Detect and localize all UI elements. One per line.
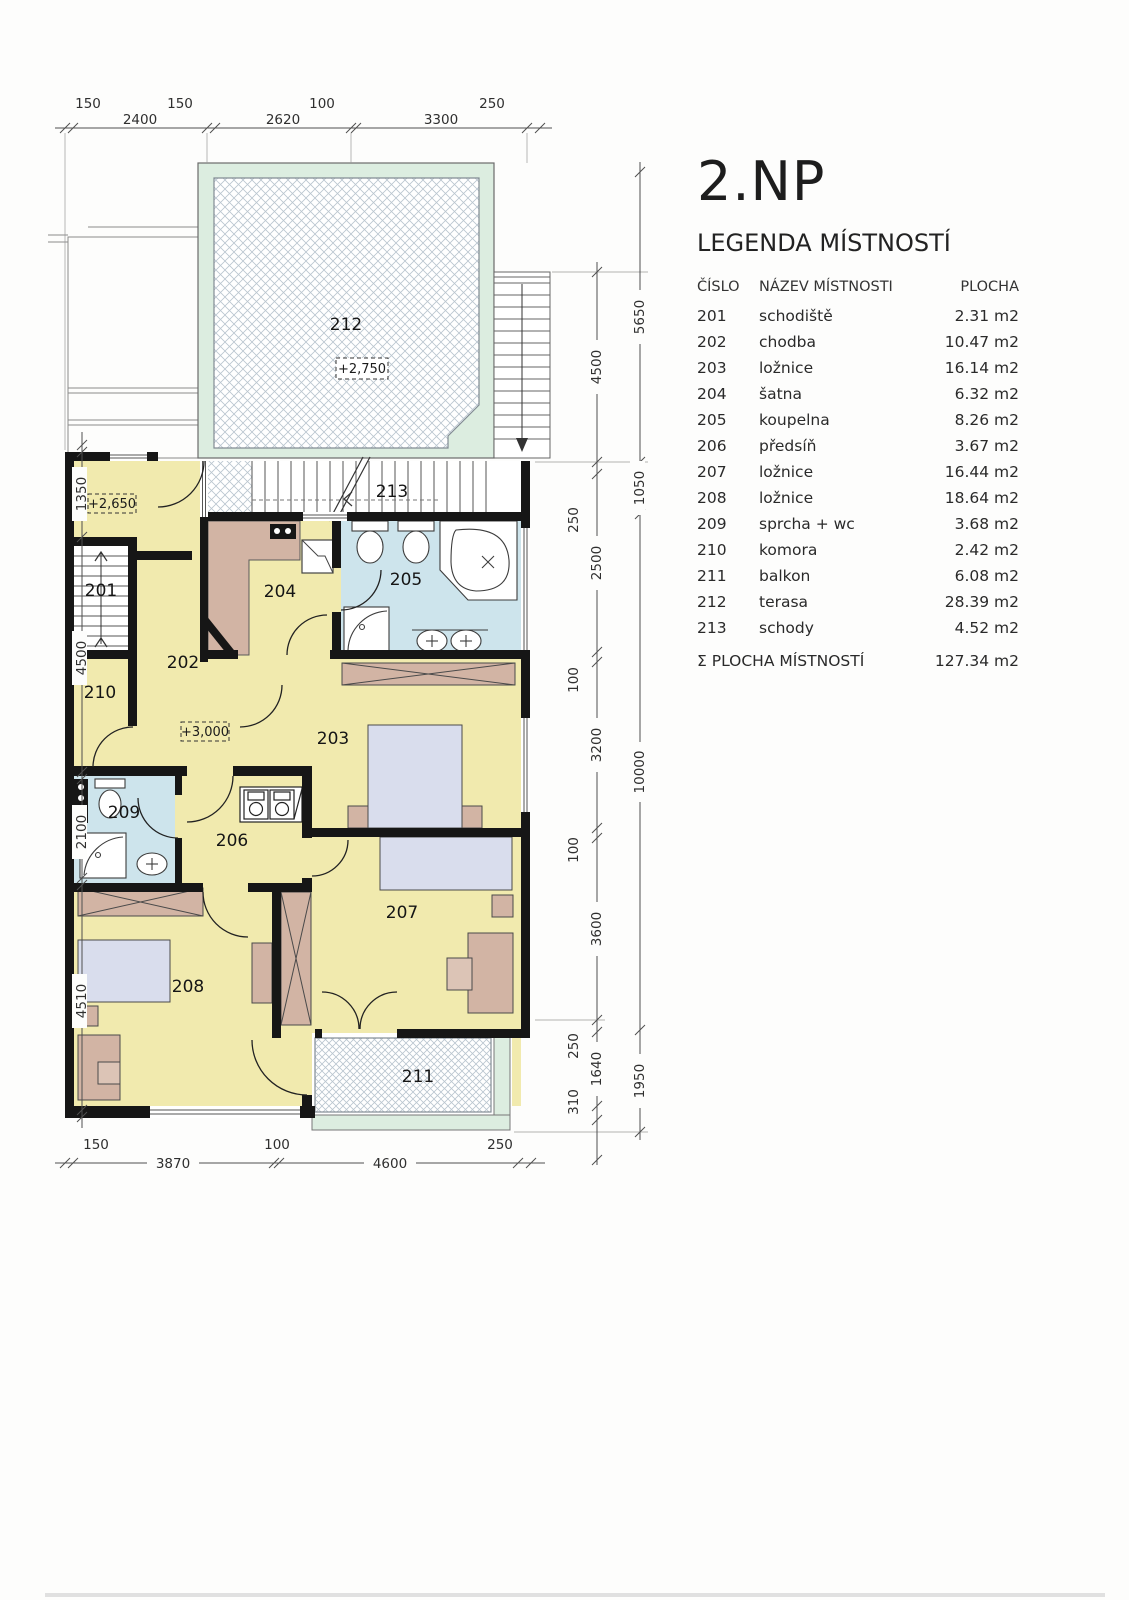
legend-row-208: 208 ložnice 18.64 m2 [697,485,1019,511]
room-area: 6.32 m2 [923,385,1019,403]
room-label-210: 210 [84,683,116,703]
dim-rin-0: 4500 [589,350,605,384]
dim-rin-8: 1640 [589,1052,605,1086]
scanned-floorplan-page: +2,650 +2,750 +3,000 201 202 203 204 205… [0,0,1129,1600]
legend-col-name: NÁZEV MÍSTNOSTI [759,279,923,295]
room-label-201: 201 [85,581,117,601]
dim-top-5: 3300 [424,112,458,128]
room-label-208: 208 [172,977,204,997]
dim-bottom-0: 150 [83,1137,109,1153]
room-name: předsíň [759,437,923,455]
dim-top-2: 150 [167,96,193,112]
room-label-205: 205 [390,570,422,590]
legend-col-number: ČÍSLO [697,279,759,295]
legend-panel: 2.NP LEGENDA MÍSTNOSTÍ ČÍSLO NÁZEV MÍSTN… [697,150,1019,675]
scan-artifact-bottom [45,1593,1105,1597]
room-number: 209 [697,515,759,533]
room-number: 202 [697,333,759,351]
room-area: 16.44 m2 [923,463,1019,481]
legend-row-204: 204 šatna 6.32 m2 [697,381,1019,407]
legend-row-205: 205 koupelna 8.26 m2 [697,407,1019,433]
legend-header-row: ČÍSLO NÁZEV MÍSTNOSTI PLOCHA [697,275,1019,299]
stair-213 [208,457,521,521]
legend-row-206: 206 předsíň 3.67 m2 [697,433,1019,459]
legend-total-area: 127.34 m2 [923,652,1019,670]
legend-row-202: 202 chodba 10.47 m2 [697,329,1019,355]
terrace-212 [198,163,494,458]
legend-heading: LEGENDA MÍSTNOSTÍ [697,229,1019,257]
room-area: 2.31 m2 [923,307,1019,325]
room-area: 3.68 m2 [923,515,1019,533]
legend-row-213: 213 schody 4.52 m2 [697,615,1019,641]
dim-bottom-4: 250 [487,1137,513,1153]
room-number: 201 [697,307,759,325]
exterior-stair [494,272,550,458]
room-label-204: 204 [264,582,296,602]
dim-rin-3: 100 [566,667,582,693]
room-area: 28.39 m2 [923,593,1019,611]
legend-row-207: 207 ložnice 16.44 m2 [697,459,1019,485]
dim-rin-2: 2500 [589,546,605,580]
legend-row-209: 209 sprcha + wc 3.68 m2 [697,511,1019,537]
dim-bottom-3: 4600 [373,1156,407,1172]
room-number: 206 [697,437,759,455]
vent-flue [270,524,296,539]
room-area: 2.42 m2 [923,541,1019,559]
legend-row-211: 211 balkon 6.08 m2 [697,563,1019,589]
room-name: ložnice [759,489,923,507]
legend-row-203: 203 ložnice 16.14 m2 [697,355,1019,381]
elevation-hall: +3,000 [181,725,229,740]
room-label-212: 212 [330,315,362,335]
roof-outline [48,227,198,458]
room-number: 213 [697,619,759,637]
room-name: schody [759,619,923,637]
legend-row-201: 201 schodiště 2.31 m2 [697,303,1019,329]
room-area: 18.64 m2 [923,489,1019,507]
dim-rout-3: 1950 [632,1064,648,1098]
kitchenette-206 [240,787,302,822]
room-number: 211 [697,567,759,585]
room-name: ložnice [759,463,923,481]
legend-row-212: 212 terasa 28.39 m2 [697,589,1019,615]
dim-left-1: 4500 [74,641,90,675]
dim-top-3: 2620 [266,112,300,128]
room-label-209: 209 [108,803,140,823]
dim-rout-1: 1050 [632,471,648,505]
room-name: šatna [759,385,923,403]
dim-top-4: 100 [309,96,335,112]
dim-rin-4: 3200 [589,728,605,762]
room-number: 204 [697,385,759,403]
room-area: 16.14 m2 [923,359,1019,377]
dim-rin-9: 310 [566,1089,582,1115]
elevation-terrace: +2,750 [338,362,386,377]
dim-rin-5: 100 [566,837,582,863]
dim-rin-6: 3600 [589,912,605,946]
room-name: chodba [759,333,923,351]
room-label-203: 203 [317,729,349,749]
room-number: 210 [697,541,759,559]
room-number: 203 [697,359,759,377]
room-label-206: 206 [216,831,248,851]
dim-left-2: 2100 [74,815,90,849]
legend-table: ČÍSLO NÁZEV MÍSTNOSTI PLOCHA 201 schodiš… [697,275,1019,675]
dim-left-0: 1350 [74,477,90,511]
room-name: koupelna [759,411,923,429]
room-name: sprcha + wc [759,515,923,533]
room-number: 212 [697,593,759,611]
dim-bottom-1: 3870 [156,1156,190,1172]
dim-bottom-2: 100 [264,1137,290,1153]
room-label-211: 211 [402,1067,434,1087]
room-label-202: 202 [167,653,199,673]
room-area: 4.52 m2 [923,619,1019,637]
room-area: 8.26 m2 [923,411,1019,429]
legend-total-label: Σ PLOCHA MÍSTNOSTÍ [697,652,923,670]
legend-row-210: 210 komora 2.42 m2 [697,537,1019,563]
dim-top-6: 250 [479,96,505,112]
room-name: balkon [759,567,923,585]
dim-rin-1: 250 [566,507,582,533]
room-area: 10.47 m2 [923,333,1019,351]
dim-rout-2: 10000 [632,751,648,794]
elevation-entry: +2,650 [88,497,136,512]
legend-total-row: Σ PLOCHA MÍSTNOSTÍ 127.34 m2 [697,647,1019,675]
room-number: 205 [697,411,759,429]
dim-rout-0: 5650 [632,300,648,334]
room-number: 207 [697,463,759,481]
room-name: komora [759,541,923,559]
dim-top-1: 2400 [123,112,157,128]
page-title: 2.NP [697,150,1019,213]
room-number: 208 [697,489,759,507]
room-label-207: 207 [386,903,418,923]
room-name: schodiště [759,307,923,325]
dim-left-3: 4510 [74,984,90,1018]
room-label-213: 213 [376,482,408,502]
dim-top-0: 150 [75,96,101,112]
room-area: 3.67 m2 [923,437,1019,455]
room-name: ložnice [759,359,923,377]
room-name: terasa [759,593,923,611]
legend-col-area: PLOCHA [923,279,1019,295]
room-area: 6.08 m2 [923,567,1019,585]
dim-rin-7: 250 [566,1033,582,1059]
